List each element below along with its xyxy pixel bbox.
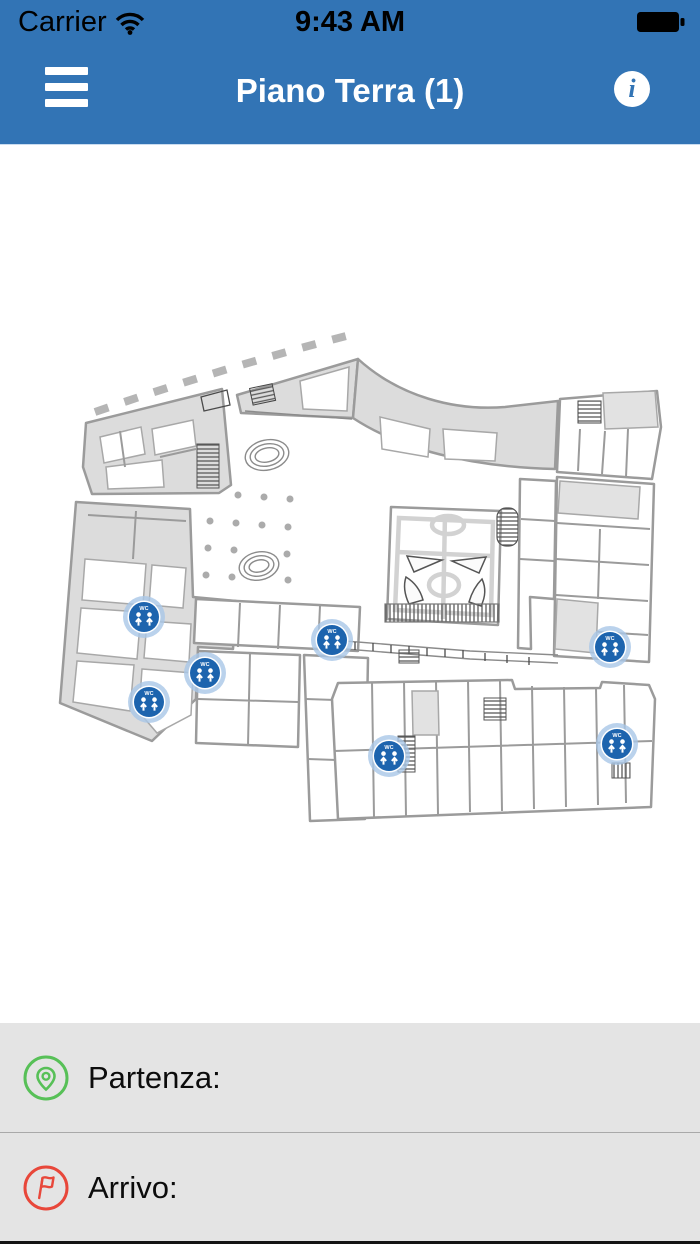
departure-label: Partenza:: [88, 1060, 221, 1096]
departure-row[interactable]: Partenza:: [0, 1023, 700, 1132]
hamburger-menu-icon[interactable]: [45, 67, 88, 107]
wc-marker[interactable]: [128, 681, 170, 723]
navigation-bar: Piano Terra (1) i: [0, 44, 700, 145]
battery-icon: [636, 11, 686, 33]
building-top-wedge: [237, 359, 358, 419]
wc-marker[interactable]: [368, 735, 410, 777]
wc-marker[interactable]: [123, 596, 165, 638]
arrival-row[interactable]: Arrivo:: [0, 1133, 700, 1242]
clock: 9:43 AM: [0, 6, 700, 39]
wc-marker[interactable]: [184, 652, 226, 694]
arrival-flag-icon: [23, 1165, 69, 1211]
info-icon[interactable]: i: [614, 71, 650, 107]
departure-pin-icon: [23, 1055, 69, 1101]
top-bar: Carrier 9:43 AM Piano Terra (1) i: [0, 0, 700, 145]
building-top-right: [557, 391, 661, 479]
courtyard-column-dots: [203, 492, 294, 584]
wc-marker[interactable]: [589, 626, 631, 668]
floor-plan-map[interactable]: WC .bld{fill:#dcdcdc;stroke:#9b9b9: [0, 145, 700, 1023]
building-north-wing: [353, 359, 558, 469]
wc-marker[interactable]: [311, 619, 353, 661]
courtyard-fountains: [237, 436, 292, 584]
floor-plan-svg[interactable]: WC .bld{fill:#dcdcdc;stroke:#9b9b9: [0, 145, 700, 1023]
app-screen: Carrier 9:43 AM Piano Terra (1) i: [0, 0, 700, 1244]
page-title: Piano Terra (1): [0, 72, 700, 110]
garden-parterre: [385, 479, 556, 649]
status-bar: Carrier 9:43 AM: [0, 0, 700, 44]
route-panel: Partenza: Arrivo:: [0, 1023, 700, 1244]
arrival-label: Arrivo:: [88, 1170, 178, 1206]
floor-plan-drawing: [60, 335, 661, 821]
wc-marker[interactable]: [596, 723, 638, 765]
